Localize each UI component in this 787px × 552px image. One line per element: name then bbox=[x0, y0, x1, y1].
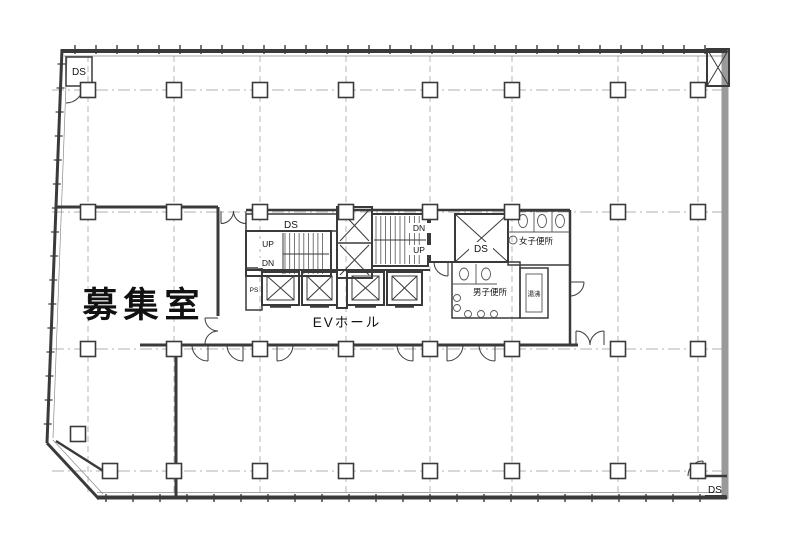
stair-east-up-label: UP bbox=[413, 245, 425, 255]
door-5 bbox=[447, 345, 463, 361]
column bbox=[691, 205, 706, 220]
core-east-block bbox=[428, 210, 584, 318]
column bbox=[339, 464, 354, 479]
floor-plan-drawing: 募集室 EVホール DS DS DS DS 女子便所 男子便所 湯沸 PS UP… bbox=[0, 0, 787, 552]
stair-east bbox=[372, 214, 428, 266]
column bbox=[505, 83, 520, 98]
stair-west-down-label: DN bbox=[262, 258, 274, 268]
womens-toilet-label: 女子便所 bbox=[519, 236, 554, 246]
stair-east-down-label: DN bbox=[413, 223, 425, 233]
door-2 bbox=[227, 345, 243, 361]
column bbox=[505, 464, 520, 479]
door-3 bbox=[277, 345, 293, 361]
core bbox=[221, 207, 584, 345]
ev-hall-south-wall bbox=[140, 331, 604, 361]
bottom-right-duct-label: DS bbox=[708, 485, 722, 496]
column bbox=[611, 342, 626, 357]
column bbox=[423, 464, 438, 479]
column bbox=[253, 342, 268, 357]
column bbox=[71, 427, 86, 442]
column bbox=[253, 464, 268, 479]
kitchenette-label: 湯沸 bbox=[528, 289, 542, 298]
elevator-2 bbox=[302, 272, 337, 307]
shaft-wall bbox=[337, 270, 347, 308]
double-door bbox=[205, 318, 218, 344]
column bbox=[81, 83, 96, 98]
elevator-4 bbox=[387, 272, 422, 307]
column bbox=[253, 83, 268, 98]
column bbox=[339, 205, 354, 220]
column bbox=[339, 342, 354, 357]
door-6 bbox=[479, 345, 495, 361]
column bbox=[691, 83, 706, 98]
facade-mullion-ticks bbox=[44, 45, 705, 502]
door-arc bbox=[570, 282, 584, 296]
column bbox=[423, 342, 438, 357]
floor-plan: 募集室 EVホール DS DS DS DS 女子便所 男子便所 湯沸 PS UP… bbox=[0, 0, 787, 552]
column bbox=[423, 83, 438, 98]
column bbox=[81, 342, 96, 357]
ev-hall-label: EVホール bbox=[313, 315, 382, 330]
west-duct-label: DS bbox=[284, 220, 298, 231]
corridor-door bbox=[434, 262, 448, 276]
column bbox=[253, 205, 268, 220]
column bbox=[167, 342, 182, 357]
building-outline bbox=[44, 45, 727, 502]
hall-double-door bbox=[221, 211, 246, 224]
column bbox=[505, 205, 520, 220]
double-door-east bbox=[576, 331, 604, 345]
stair-west-up-label: UP bbox=[262, 239, 274, 249]
column bbox=[339, 83, 354, 98]
vacant-room-label: 募集室 bbox=[81, 285, 205, 325]
column bbox=[691, 464, 706, 479]
column bbox=[103, 464, 118, 479]
column bbox=[167, 205, 182, 220]
east-duct-label: DS bbox=[474, 244, 488, 255]
door-4 bbox=[397, 345, 413, 361]
column bbox=[81, 205, 96, 220]
column bbox=[611, 464, 626, 479]
column bbox=[611, 83, 626, 98]
elevator-bank bbox=[246, 268, 430, 310]
column bbox=[167, 464, 182, 479]
column bbox=[611, 205, 626, 220]
elevator-1 bbox=[262, 272, 299, 307]
column bbox=[691, 342, 706, 357]
inner-diagonal-wall bbox=[56, 441, 108, 474]
door-1 bbox=[192, 345, 208, 361]
column bbox=[505, 342, 520, 357]
mens-toilet-label: 男子便所 bbox=[473, 287, 508, 297]
pipe-space-label: PS bbox=[250, 287, 259, 294]
column bbox=[423, 205, 438, 220]
top-left-duct-label: DS bbox=[72, 67, 86, 78]
column bbox=[167, 83, 182, 98]
